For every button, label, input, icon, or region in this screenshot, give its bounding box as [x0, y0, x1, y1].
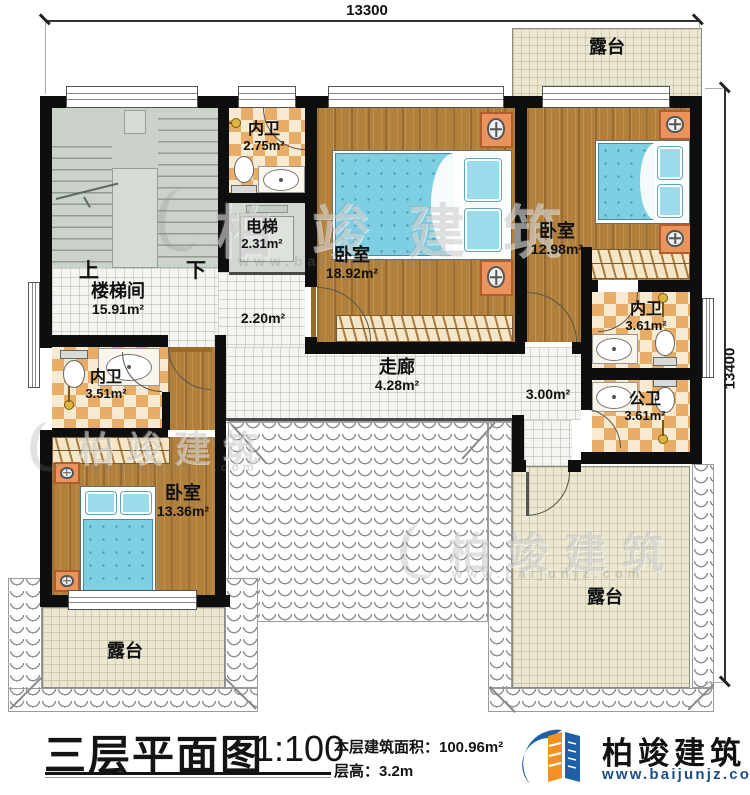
dimension-top-value: 13300: [332, 2, 402, 19]
door-leaf: [526, 472, 529, 516]
room-label-bedroom-main: 卧室 18.92m²: [326, 246, 378, 281]
title-underline-shadow: [45, 777, 331, 778]
wall: [215, 335, 226, 607]
toilet-bowl: [63, 360, 85, 388]
room-label-bedroom-left: 卧室 13.36m²: [157, 484, 209, 519]
wall: [638, 280, 702, 292]
room-name: 卧室: [157, 484, 209, 503]
toilet-bowl: [655, 330, 674, 356]
roof-middle: [228, 421, 488, 622]
stair-up-label: 上: [79, 254, 99, 283]
nightstand-lamp-icon: [60, 575, 74, 587]
stair-top-landing: [124, 110, 146, 134]
room-name: 卧室: [531, 222, 583, 241]
pillow: [86, 492, 116, 514]
room-label-bath-top: 内卫 2.75m²: [243, 122, 284, 154]
wall: [218, 96, 229, 272]
wall: [40, 335, 168, 347]
window: [328, 86, 504, 108]
corridor-parapet: [226, 418, 512, 421]
roof-strip: [488, 421, 512, 688]
roof-strip: [692, 464, 714, 688]
extension-line: [705, 682, 723, 683]
floor-height-text: 层高：3.2m: [334, 760, 413, 781]
wall: [40, 430, 52, 607]
room-name: 内卫: [243, 122, 284, 139]
wall: [581, 380, 592, 410]
wall: [568, 460, 581, 472]
faucet-icon: [279, 178, 283, 182]
pillow: [658, 147, 682, 179]
bed: [595, 140, 690, 224]
room-label-terrace-left: 露台: [107, 642, 143, 661]
nightstand: [659, 224, 692, 254]
drain-stem: [68, 386, 70, 402]
nightstand: [480, 260, 513, 296]
wall: [218, 193, 317, 203]
room-name: 内卫: [85, 370, 126, 387]
wardrobe: [52, 437, 170, 464]
room-label-terrace-top: 露台: [589, 38, 625, 57]
window: [28, 282, 40, 388]
corridor-floor: [226, 347, 512, 418]
floor-plan-canvas: 柏竣建筑 www.baijunjz.com 柏竣建筑 www.baijunjz.…: [0, 0, 750, 795]
toilet-icon: [60, 350, 88, 390]
corridor-right-floor: [512, 347, 581, 420]
pillow: [121, 492, 151, 514]
window: [702, 298, 714, 378]
brand-logo-icon: [510, 724, 598, 792]
wall: [515, 96, 527, 342]
room-area: 3.51m²: [85, 387, 126, 402]
toilet-tank: [60, 350, 88, 359]
room-area: 3.61m²: [625, 319, 666, 334]
room-label-elevator: 电梯 2.31m²: [241, 220, 282, 252]
elevator-door-line: [229, 272, 305, 275]
elevator-door-slot: [246, 205, 288, 213]
room-name: 内卫: [625, 302, 666, 319]
room-area: 18.92m²: [326, 265, 378, 281]
terrace-doorway-floor: [524, 420, 572, 466]
room-name: 露台: [587, 588, 623, 607]
nightstand: [659, 110, 692, 140]
roof-strip: [488, 688, 714, 712]
bed: [332, 150, 512, 260]
dimension-right-value: 13400: [722, 339, 739, 399]
nightstand-lamp-icon: [60, 467, 74, 479]
wall: [581, 280, 598, 292]
extension-line: [705, 88, 723, 89]
room-name: 电梯: [241, 220, 282, 237]
nightstand: [54, 570, 80, 592]
room-area: 4.28m²: [375, 377, 419, 393]
wall: [162, 392, 170, 430]
toilet-icon: [653, 330, 677, 366]
wall: [572, 342, 581, 354]
nightstand-lamp-icon: [666, 230, 684, 248]
corridor-parapet-line: [226, 422, 512, 423]
wall: [581, 368, 702, 380]
room-name: 露台: [589, 38, 625, 57]
room-label-bedroom-right: 卧室 12.98m²: [531, 222, 583, 257]
room-area: 12.98m²: [531, 241, 583, 257]
wall: [581, 452, 702, 464]
room-label-bath-left: 内卫 3.51m²: [85, 370, 126, 402]
toilet-icon: [231, 156, 257, 194]
door-leaf: [311, 287, 316, 337]
nightstand-lamp-icon: [666, 116, 684, 134]
stair-down-label: 下: [186, 254, 206, 283]
wall: [512, 460, 526, 472]
faucet-icon: [612, 395, 616, 399]
stair-treads: [158, 108, 218, 268]
room-area: 2.20m²: [241, 310, 285, 326]
toilet-bowl: [234, 156, 255, 183]
extension-line: [45, 21, 46, 94]
room-name: 卧室: [326, 246, 378, 265]
nightstand: [480, 112, 513, 148]
room-name: 公卫: [624, 392, 665, 409]
wall: [581, 247, 592, 380]
wall: [40, 595, 70, 607]
wall: [40, 96, 52, 348]
title-underline: [45, 772, 331, 775]
toilet-tank: [653, 357, 677, 366]
room-area: 2.31m²: [241, 237, 282, 252]
drain-icon: [231, 118, 241, 128]
room-label-bath-public: 公卫 3.61m²: [624, 392, 665, 424]
window: [238, 86, 296, 108]
pillow: [465, 159, 501, 201]
room-name: 露台: [107, 642, 143, 661]
brand-url: www.baijunjz.com: [602, 766, 750, 783]
room-area: 15.91m²: [91, 301, 145, 317]
room-label-bath-right: 内卫 3.61m²: [625, 302, 666, 334]
mattress: [83, 519, 153, 593]
room-area: 13.36m²: [157, 503, 209, 519]
bed: [80, 486, 156, 596]
stair-landing: [112, 168, 158, 268]
pillow: [658, 185, 682, 217]
nightstand: [54, 462, 80, 484]
room-label-corridor-link: 2.20m²: [241, 310, 285, 326]
room-area: 3.00m²: [526, 386, 570, 402]
window: [66, 86, 198, 108]
room-label-stairwell: 楼梯间 15.91m²: [91, 282, 145, 317]
room-area: 3.61m²: [624, 409, 665, 424]
wall: [52, 428, 168, 437]
room-label-corridor: 走廊 4.28m²: [375, 358, 419, 393]
room-label-corridor-right: 3.00m²: [526, 386, 570, 402]
pillow: [465, 209, 501, 251]
room-area: 2.75m²: [243, 139, 284, 154]
wall: [305, 342, 515, 354]
floor-area-text: 本层建筑面积：100.96m²: [334, 736, 503, 757]
wall: [195, 595, 230, 607]
nightstand-lamp-icon: [487, 266, 505, 288]
dimension-line-top: [45, 20, 700, 22]
plan-scale: 1:100: [254, 728, 344, 770]
wall: [515, 342, 525, 354]
door-leaf: [170, 347, 212, 352]
room-name: 走廊: [375, 358, 419, 377]
window: [68, 590, 197, 610]
roof-strip: [8, 688, 258, 712]
window: [542, 86, 670, 108]
faucet-icon: [612, 347, 616, 351]
wall: [305, 96, 317, 287]
stair-treads: [52, 136, 112, 268]
nightstand-lamp-icon: [487, 118, 505, 140]
room-name: 楼梯间: [91, 282, 145, 301]
room-label-terrace-right: 露台: [587, 588, 623, 607]
